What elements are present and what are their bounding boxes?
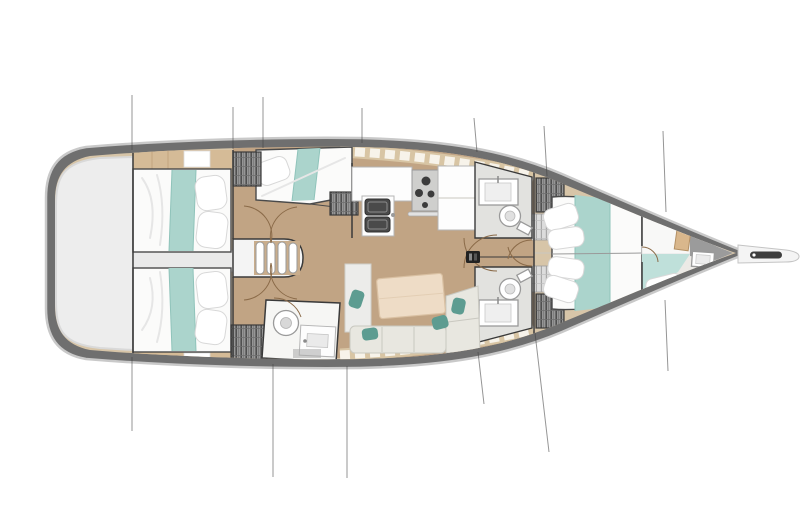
interior: [46, 130, 746, 375]
teal-runner: [169, 170, 196, 251]
pillow: [194, 174, 228, 212]
rigging-line: [474, 118, 477, 152]
burner-icon: [422, 202, 428, 208]
sink-basin-icon: [307, 333, 329, 347]
sink-basin-icon: [365, 199, 390, 215]
sink-basin-icon: [485, 183, 511, 201]
pillow: [194, 308, 228, 346]
salon-table: [376, 273, 445, 319]
floor-plan-canvas: [0, 0, 800, 505]
step: [256, 242, 264, 274]
companionway-steps: [233, 239, 303, 277]
headboard-shelf: [133, 150, 232, 169]
faucet-icon: [391, 213, 395, 217]
aft-cabin-starboard: [133, 268, 232, 368]
step: [278, 242, 286, 274]
burner-icon: [428, 191, 435, 198]
wardrobe-hatched: [233, 152, 261, 186]
cockpit-area: [56, 157, 133, 350]
sink-basin-icon: [696, 255, 711, 265]
pillow: [195, 210, 229, 249]
teal-runner: [169, 268, 196, 351]
sink-basin-icon: [365, 217, 390, 232]
pillow: [195, 270, 229, 309]
rigging-line: [665, 300, 668, 371]
rigging-line: [663, 131, 666, 212]
shower-drain: [293, 349, 321, 358]
throw-pillow: [361, 327, 379, 341]
rigging-line: [535, 333, 549, 452]
sink-basin-icon: [485, 304, 511, 322]
shelf-panel: [184, 151, 210, 167]
aft-head: [262, 300, 340, 362]
settee-chaise: [446, 286, 480, 353]
burner-icon: [422, 177, 431, 186]
burner-icon: [415, 189, 423, 197]
yacht-floor-plan: [0, 0, 800, 505]
rigging-line: [478, 352, 484, 404]
bowsprit: [738, 245, 799, 263]
mast: [466, 251, 480, 263]
forward-cabin: [541, 195, 642, 311]
anchor-pin: [752, 253, 755, 256]
step: [289, 243, 297, 273]
step: [267, 242, 275, 274]
faucet-icon: [303, 339, 307, 343]
aft-cabin-port: [133, 150, 232, 252]
